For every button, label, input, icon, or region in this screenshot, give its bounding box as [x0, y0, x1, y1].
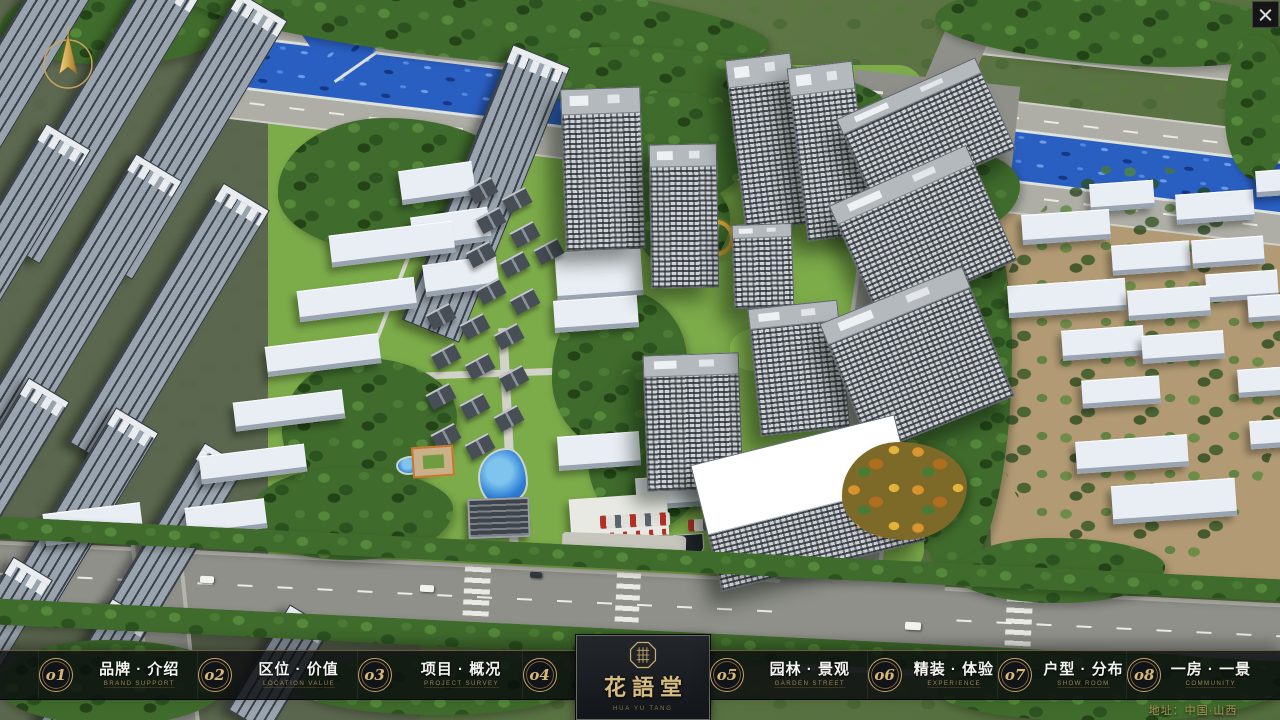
warehouse-building [1127, 285, 1211, 321]
nav-number-badge: o5 [710, 658, 744, 692]
nav-number-badge: o4 [523, 658, 557, 692]
app-window: o1 品牌 · 介绍 BRAND SUPPORT o2 区位 · 价值 LOCA… [0, 0, 1280, 720]
warehouse-building [1089, 180, 1155, 212]
warehouse-building [1081, 375, 1161, 408]
nav-number-badge: o7 [998, 658, 1032, 692]
residential-tower [649, 143, 720, 288]
residential-tower [560, 87, 646, 252]
warehouse-building [1061, 325, 1145, 361]
nav-label-en: EXPERIENCE [927, 680, 981, 688]
nav-item-garden-landscape[interactable]: o5 园林 · 景观 GARDEN STREET [710, 651, 867, 699]
tower-roof [788, 62, 855, 96]
warehouse-building [1021, 209, 1111, 245]
seal-emblem-icon [629, 641, 657, 669]
nav-label-en: PROJECT SURVEY [424, 680, 499, 688]
nav-number-badge: o1 [39, 658, 73, 692]
forest-patch [1225, 35, 1280, 180]
project-logo-subtitle: HUA YU TANG [613, 705, 673, 712]
warehouse-building [1175, 189, 1255, 224]
project-address: 地址：中国·山西 [1108, 702, 1278, 718]
warehouse-building [1249, 419, 1280, 450]
nav-label-en: BRAND SUPPORT [104, 680, 175, 688]
crosswalk [615, 565, 642, 622]
project-logo-title: 花語堂 [598, 670, 688, 702]
nav-item-brand-intro[interactable]: o1 品牌 · 介绍 BRAND SUPPORT [38, 651, 197, 699]
nav-label-en: GARDEN STREET [775, 680, 845, 688]
nav-label-zh: 区位 · 价值 [258, 658, 338, 679]
nav-number-badge: o6 [868, 658, 902, 692]
close-button[interactable] [1252, 1, 1279, 28]
residential-tower [732, 223, 795, 309]
bottom-navigation: o1 品牌 · 介绍 BRAND SUPPORT o2 区位 · 价值 LOCA… [0, 650, 1280, 700]
vehicle [905, 622, 921, 631]
nav-label-en: LOCATION VALUE [263, 680, 335, 688]
crosswalk [463, 559, 492, 616]
nav-label-zh: 品牌 · 介绍 [99, 658, 179, 679]
nav-item-interior-experience[interactable]: o6 精装 · 体验 EXPERIENCE [867, 651, 997, 699]
low-rise-building [554, 247, 643, 301]
nav-number-badge: o8 [1127, 658, 1161, 692]
vehicle [420, 585, 434, 593]
nav-group-right: o5 园林 · 景观 GARDEN STREET o6 精装 · 体验 EXPE… [710, 650, 1280, 700]
pavilion-building [467, 497, 530, 539]
warehouse-building [1255, 169, 1280, 197]
warehouse-building [1237, 366, 1280, 398]
tower-roof [644, 353, 739, 377]
tower-roof [561, 88, 640, 116]
low-rise-building [557, 431, 641, 471]
tower-roof [650, 144, 716, 167]
low-rise-building [553, 295, 639, 333]
nav-label-en: SHOW ROOM [1057, 680, 1110, 688]
compass-north-icon [36, 24, 100, 98]
warehouse-building [1247, 294, 1280, 323]
nav-item-floorplan-distribution[interactable]: o7 户型 · 分布 SHOW ROOM [997, 651, 1126, 699]
nav-item-location-value[interactable]: o2 区位 · 价值 LOCATION VALUE [197, 651, 357, 699]
warehouse-building [1191, 236, 1265, 269]
project-logo-panel[interactable]: 花語堂 HUA YU TANG [576, 635, 710, 720]
nav-label-zh: 精装 · 体验 [914, 658, 994, 679]
nav-label-zh: 户型 · 分布 [1043, 658, 1123, 679]
nav-label-zh: 园林 · 景观 [770, 658, 850, 679]
nav-group-left: o1 品牌 · 介绍 BRAND SUPPORT o2 区位 · 价值 LOCA… [0, 650, 576, 700]
nav-item-room-view[interactable]: o8 一房 · 一景 COMMUNITY [1126, 651, 1252, 699]
tower-roof [733, 224, 791, 239]
nav-label-zh: 项目 · 概况 [421, 658, 501, 679]
nav-number-badge: o3 [358, 658, 392, 692]
nav-item-project-survey[interactable]: o3 项目 · 概况 PROJECT SURVEY [357, 651, 522, 699]
clubhouse-building [411, 445, 455, 479]
vehicle [530, 572, 542, 579]
warehouse-building [1111, 240, 1191, 275]
masterplan-3d-view[interactable] [0, 0, 1280, 720]
warehouse-building [1141, 330, 1225, 364]
nav-label-zh: 一房 · 一景 [1171, 658, 1251, 679]
vehicle [200, 576, 214, 584]
tower-roof [726, 54, 793, 88]
nav-number-badge: o2 [198, 658, 232, 692]
nav-label-en: COMMUNITY [1186, 680, 1237, 688]
